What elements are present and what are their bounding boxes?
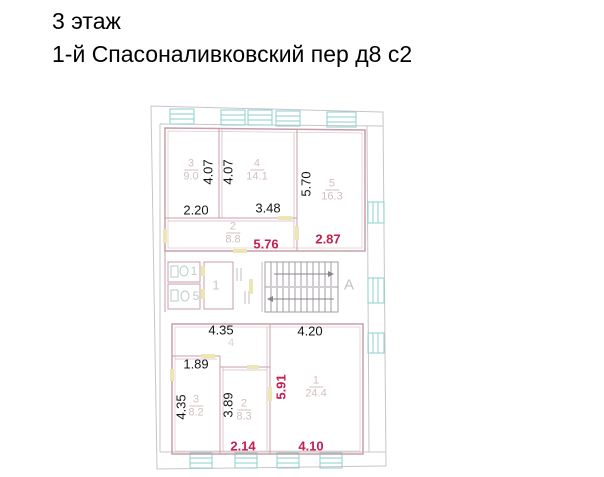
room-area: 8.3 (236, 411, 251, 423)
stairwell-letter: А (344, 277, 354, 294)
staircase (265, 262, 338, 312)
room-label-upper-5: 5 16.3 (321, 178, 342, 203)
room-area: 24.4 (305, 388, 326, 400)
room-label-lower-3: 3 8.2 (188, 394, 203, 419)
wc-room-number: 5 (193, 289, 200, 303)
dimension-label: 3.48 (255, 201, 280, 216)
dimension-label: 4.35 (208, 323, 233, 338)
room-area: 9.0 (183, 171, 198, 183)
room-number: 4 (250, 158, 264, 171)
room-label-upper-2: 2 8.8 (225, 221, 240, 246)
red-dimension-label: 5.76 (253, 237, 278, 252)
lower-apartment-walls (172, 324, 363, 454)
room-label-lower-2: 2 8.3 (236, 398, 251, 423)
room-number: 5 (325, 178, 339, 191)
room-number: 2 (237, 398, 251, 411)
room-area: 8.8 (225, 234, 240, 246)
room-label-lower-1: 1 24.4 (305, 375, 326, 400)
wc-room-number: 1 (191, 264, 198, 278)
dimension-label: 4.20 (297, 324, 322, 339)
dimension-label: 1.89 (183, 357, 208, 372)
room-area: 16.3 (321, 191, 342, 203)
floor-plan-drawing (0, 0, 604, 477)
room-number: 1 (309, 375, 323, 388)
dimension-label-vertical: 3.89 (221, 392, 236, 417)
dimension-label-vertical: 4.35 (174, 394, 189, 419)
floor-plan-page: 3 этаж 1-й Спасоналивковский пер д8 с2 (0, 0, 604, 477)
red-dimension-label: 2.87 (315, 232, 340, 247)
room-number: 3 (184, 158, 198, 171)
room-area: 14.1 (246, 171, 267, 183)
dimension-label-vertical: 4.07 (201, 159, 216, 184)
room-label-upper-3: 3 9.0 (183, 158, 198, 183)
red-dimension-label-vertical: 5.91 (274, 374, 289, 399)
dimension-label-vertical: 5.70 (299, 171, 314, 196)
room-label-upper-4: 4 14.1 (246, 158, 267, 183)
dimension-label: 2.20 (183, 203, 208, 218)
room-number: 2 (226, 221, 240, 234)
hall-room-number: 1 (212, 278, 219, 293)
room-label-lower-4: 4 (228, 337, 234, 349)
red-dimension-label: 4.10 (298, 439, 323, 454)
room-number: 3 (189, 394, 203, 407)
dimension-label-vertical: 4.07 (221, 159, 236, 184)
room-area: 8.2 (188, 407, 203, 419)
red-dimension-label: 2.14 (230, 439, 255, 454)
